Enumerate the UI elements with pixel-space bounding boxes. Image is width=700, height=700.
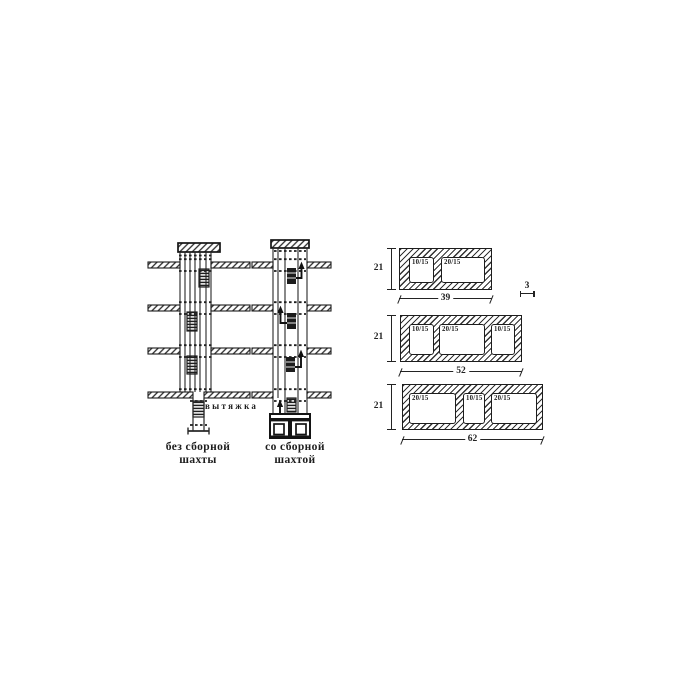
shaft-diagram-with-collector bbox=[250, 236, 345, 446]
opening-label: 10/15 bbox=[410, 325, 433, 334]
dim-height-value: 21 bbox=[372, 401, 385, 412]
dim-tick bbox=[387, 429, 396, 430]
vent-block-62: 20/15 10/15 20/15 bbox=[402, 384, 543, 430]
dim-width-block-62: 62 bbox=[402, 434, 543, 445]
dim-tick bbox=[490, 295, 494, 303]
dim-tick bbox=[541, 436, 545, 444]
dim-tick bbox=[387, 361, 396, 362]
opening-label: 10/15 bbox=[410, 258, 433, 267]
dim-wall-thickness bbox=[520, 288, 534, 299]
block-opening: 20/15 bbox=[439, 324, 485, 355]
dim-line bbox=[520, 293, 534, 294]
caption-right-line2: шахтой bbox=[249, 454, 341, 467]
vent-block-52: 10/15 20/15 10/15 bbox=[400, 315, 522, 362]
dim-line bbox=[391, 385, 392, 429]
dim-tick bbox=[387, 289, 396, 290]
shaft-cap bbox=[271, 240, 309, 248]
block-opening: 20/15 bbox=[441, 257, 485, 283]
block-opening: 10/15 bbox=[463, 393, 485, 424]
dim-line bbox=[391, 249, 392, 289]
block-opening: 20/15 bbox=[409, 393, 456, 424]
vent-block-39: 10/15 20/15 bbox=[399, 248, 492, 290]
dim-height-value: 21 bbox=[372, 332, 385, 343]
dim-height-block-39 bbox=[387, 248, 396, 290]
ventilation-figure-canvas: вытяжка без сборной шахты bbox=[0, 0, 700, 700]
dim-width-value: 52 bbox=[453, 366, 469, 377]
dim-tick bbox=[520, 368, 524, 376]
dim-tick bbox=[520, 291, 521, 297]
air-flow-arrow-icon bbox=[277, 262, 305, 414]
opening-label: 20/15 bbox=[492, 394, 536, 403]
shaft-cap bbox=[178, 243, 220, 252]
opening-label: 20/15 bbox=[442, 258, 484, 267]
block-opening: 10/15 bbox=[491, 324, 515, 355]
shaft-diagram-without-collector bbox=[143, 236, 263, 442]
opening-label: 20/15 bbox=[410, 394, 455, 403]
opening-label: 20/15 bbox=[440, 325, 484, 334]
dim-tick bbox=[533, 291, 534, 297]
block-opening: 10/15 bbox=[409, 324, 434, 355]
caption-left-line1: без сборной bbox=[152, 441, 244, 454]
block-opening: 10/15 bbox=[409, 257, 434, 283]
dim-width-value: 62 bbox=[465, 434, 481, 445]
caption-right-line1: со сборной bbox=[249, 441, 341, 454]
dim-width-block-39: 39 bbox=[399, 293, 492, 304]
opening-label: 10/15 bbox=[492, 325, 514, 334]
collector-bottom-grille bbox=[287, 398, 296, 412]
dim-line bbox=[391, 316, 392, 361]
dim-height-block-52 bbox=[387, 315, 396, 362]
block-opening: 20/15 bbox=[491, 393, 537, 424]
opening-label: 10/15 bbox=[464, 394, 484, 403]
dim-width-block-52: 52 bbox=[400, 366, 522, 377]
collector-base-section bbox=[270, 414, 310, 438]
dim-height-block-62 bbox=[387, 384, 396, 430]
dim-width-value: 39 bbox=[438, 293, 454, 304]
caption-left-line2: шахты bbox=[152, 454, 244, 467]
dim-height-value: 21 bbox=[372, 263, 385, 274]
